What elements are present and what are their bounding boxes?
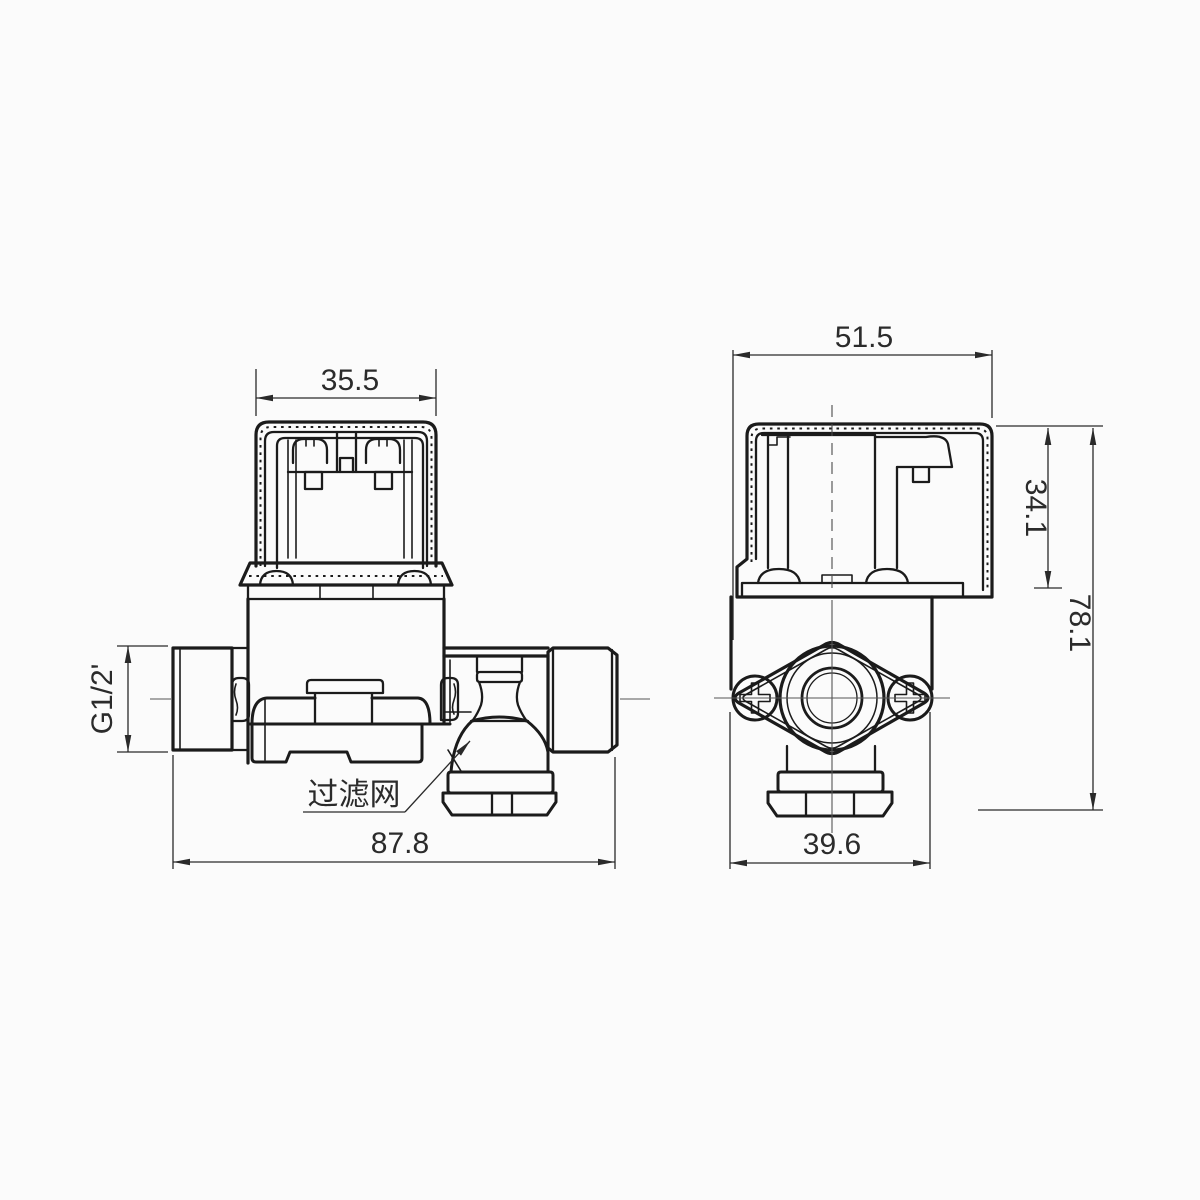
terminal-tabs bbox=[293, 439, 400, 463]
dim-label-overall-length: 87.8 bbox=[371, 827, 429, 860]
bobbin-feet bbox=[260, 571, 431, 585]
bobbin-step bbox=[768, 437, 790, 445]
port-body-links bbox=[232, 648, 248, 750]
hex-nut bbox=[768, 792, 892, 816]
drawing-canvas: 35.5 G1/2' 87.8 过滤网 bbox=[0, 0, 1200, 1200]
coupling-outline bbox=[548, 648, 617, 752]
inlet-port bbox=[173, 648, 248, 750]
dim-label-coil-width-side: 51.5 bbox=[835, 321, 893, 354]
lower-skirt bbox=[252, 724, 422, 762]
cover-knurl-dots bbox=[261, 427, 432, 566]
dim-label-coil-width-front: 35.5 bbox=[321, 364, 379, 397]
technical-drawing: 35.5 G1/2' 87.8 过滤网 bbox=[0, 0, 1200, 1200]
base-plate bbox=[742, 583, 963, 597]
cover-skirt bbox=[240, 563, 452, 585]
filter-assembly bbox=[443, 656, 556, 815]
hex-facets bbox=[806, 792, 854, 815]
dim-label-inlet-thread: G1/2' bbox=[86, 664, 119, 735]
filter-band bbox=[448, 772, 553, 793]
plate-notch bbox=[822, 575, 852, 583]
coil-housing-front bbox=[240, 422, 452, 599]
dim-coil-height: 34.1 bbox=[996, 426, 1103, 588]
outlet-pipe-lines bbox=[444, 648, 548, 656]
top-plateau bbox=[307, 680, 383, 723]
dim-coil-width-side: 51.5 bbox=[733, 321, 992, 640]
base-plate bbox=[248, 585, 444, 599]
filter-spool bbox=[471, 656, 528, 721]
base-plate-splits bbox=[320, 585, 373, 599]
port-outline bbox=[173, 648, 232, 750]
cover-outline bbox=[256, 422, 436, 566]
dim-coil-width-front: 35.5 bbox=[256, 364, 436, 416]
bobbin-feet bbox=[758, 569, 908, 583]
dim-label-overall-height: 78.1 bbox=[1063, 594, 1096, 652]
dim-label-flange-width: 39.6 bbox=[803, 828, 861, 861]
coil-housing-side bbox=[737, 405, 992, 597]
hex-facets bbox=[492, 793, 512, 814]
nut-band bbox=[778, 772, 883, 792]
bobbin-profile bbox=[762, 435, 897, 568]
coupling-face-lines bbox=[553, 648, 612, 752]
side-view: 51.5 34.1 78.1 39.6 bbox=[714, 321, 1103, 869]
terminal-blade bbox=[875, 436, 952, 482]
filter-hex-nut bbox=[443, 793, 556, 815]
outlet-coupling bbox=[444, 648, 617, 771]
cover-inner-line bbox=[756, 433, 983, 590]
centerlines-side bbox=[714, 600, 950, 833]
callout-leader bbox=[405, 741, 470, 812]
filter-callout-label: 过滤网 bbox=[308, 777, 401, 812]
valve-body-front bbox=[232, 599, 458, 763]
filter-dome bbox=[451, 717, 548, 772]
dim-label-coil-height: 34.1 bbox=[1019, 479, 1052, 537]
front-view: 35.5 G1/2' 87.8 过滤网 bbox=[86, 364, 650, 869]
coil-lugs bbox=[305, 472, 392, 489]
cover-outline bbox=[737, 424, 992, 597]
cover-inner-line bbox=[265, 432, 427, 566]
mid-band bbox=[248, 698, 450, 724]
